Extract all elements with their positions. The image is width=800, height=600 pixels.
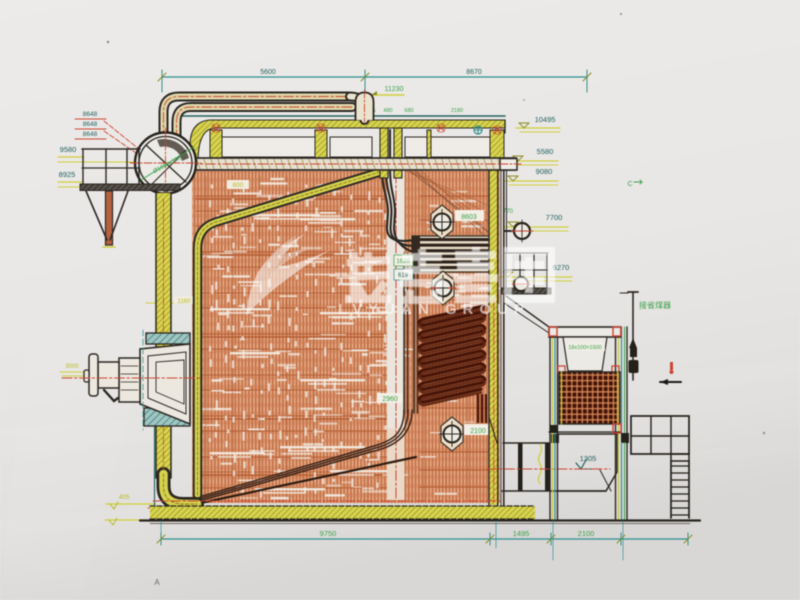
svg-text:680: 680 <box>404 108 413 114</box>
svg-text:600: 600 <box>233 182 244 189</box>
svg-text:11230: 11230 <box>385 86 404 93</box>
svg-text:7700: 7700 <box>546 213 563 222</box>
svg-text:8648: 8648 <box>83 111 98 118</box>
svg-text:8648: 8648 <box>83 131 98 138</box>
svg-text:405: 405 <box>119 494 130 501</box>
svg-text:接省煤器: 接省煤器 <box>639 300 671 310</box>
svg-text:10495: 10495 <box>535 115 556 124</box>
svg-text:LVYUAN GROUP: LVYUAN GROUP <box>338 301 530 318</box>
svg-text:1495: 1495 <box>513 529 530 538</box>
svg-text:9080: 9080 <box>536 167 553 176</box>
svg-text:8603: 8603 <box>461 214 477 221</box>
svg-text:3000: 3000 <box>65 364 79 370</box>
svg-text:2100: 2100 <box>578 529 595 538</box>
svg-text:A: A <box>154 578 160 587</box>
svg-text:1160: 1160 <box>178 299 192 305</box>
svg-text:18x100=1500: 18x100=1500 <box>568 345 602 351</box>
svg-text:8925: 8925 <box>59 170 76 179</box>
svg-text:5580: 5580 <box>537 147 554 156</box>
svg-text:2960: 2960 <box>382 396 398 403</box>
svg-text:5600: 5600 <box>260 69 276 76</box>
svg-text:480: 480 <box>383 108 392 114</box>
svg-text:2100: 2100 <box>470 428 486 435</box>
svg-text:9750: 9750 <box>320 529 337 538</box>
svg-text:1305: 1305 <box>580 454 597 463</box>
svg-text:8670: 8670 <box>466 69 482 76</box>
svg-text:9580: 9580 <box>60 145 77 154</box>
svg-text:8648: 8648 <box>83 121 98 128</box>
svg-text:6270: 6270 <box>553 263 570 272</box>
svg-text:2180: 2180 <box>451 108 463 114</box>
svg-text:C: C <box>627 181 632 188</box>
